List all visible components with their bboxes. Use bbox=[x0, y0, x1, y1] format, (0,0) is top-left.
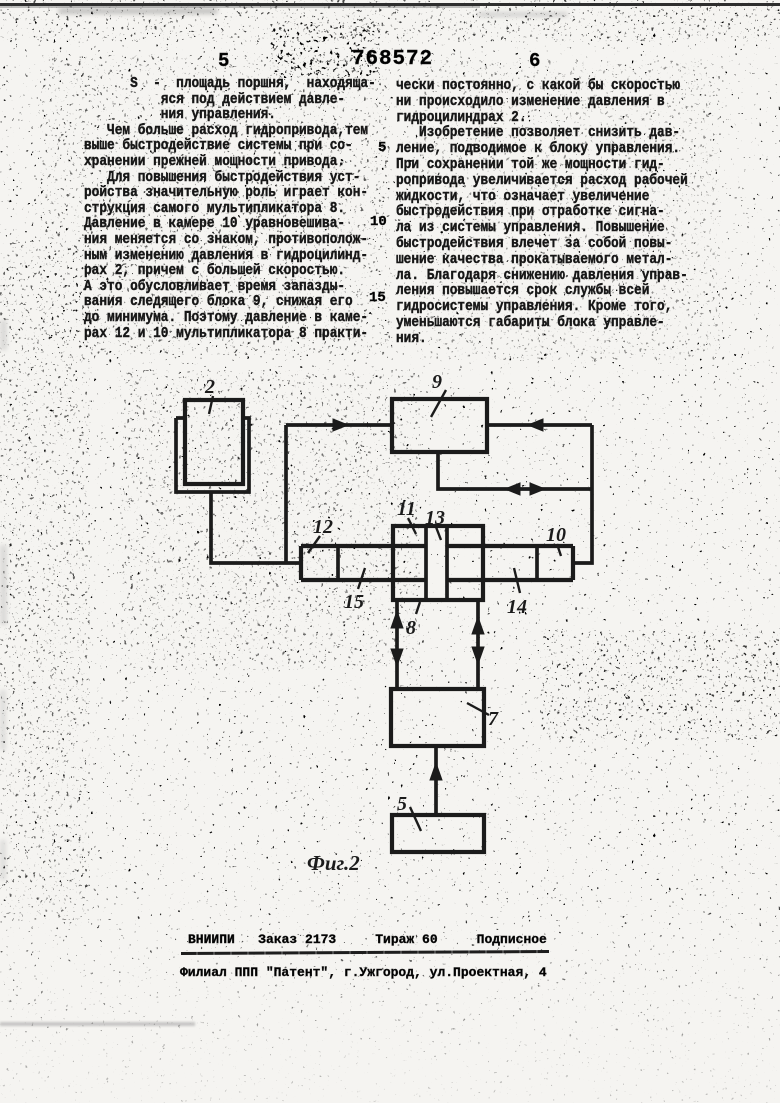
svg-text:8: 8 bbox=[406, 617, 416, 639]
svg-text:12: 12 bbox=[313, 516, 333, 538]
svg-text:14: 14 bbox=[507, 596, 527, 618]
svg-text:9: 9 bbox=[432, 371, 442, 393]
svg-text:7: 7 bbox=[488, 708, 499, 730]
svg-text:5: 5 bbox=[397, 793, 407, 815]
svg-text:10: 10 bbox=[546, 524, 566, 546]
svg-text:11: 11 bbox=[397, 498, 416, 520]
svg-text:15: 15 bbox=[344, 591, 364, 613]
svg-text:13: 13 bbox=[425, 507, 445, 529]
svg-text:2: 2 bbox=[204, 376, 215, 398]
svg-text:Фиг.2: Фиг.2 bbox=[307, 851, 360, 875]
